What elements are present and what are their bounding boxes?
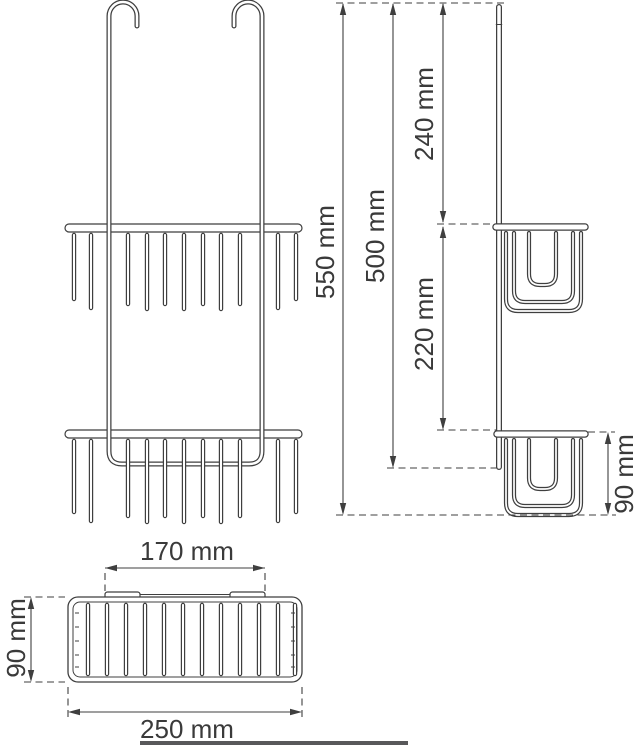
dim-label-170: 170 mm xyxy=(140,536,234,566)
top-view xyxy=(68,592,302,682)
upper-basket-rim xyxy=(65,224,302,232)
arrowhead xyxy=(340,503,346,515)
technical-drawing: 550 mm 500 mm 240 mm 220 mm 90 mm 170 mm… xyxy=(0,0,640,745)
arrowhead xyxy=(253,565,265,571)
upper-basket-profile-middle xyxy=(514,233,573,302)
bottom-edge-bar xyxy=(140,741,408,745)
dimensions-side: 550 mm 500 mm 240 mm 220 mm 90 mm xyxy=(310,3,639,515)
dim-label-240: 240 mm xyxy=(409,67,439,161)
upper-basket-profile-middle-core xyxy=(514,233,573,302)
dim-label-90-top: 90 mm xyxy=(1,598,31,677)
arrowhead xyxy=(440,418,446,430)
lower-basket-profile-inner xyxy=(529,440,556,489)
arrowhead xyxy=(105,565,117,571)
lower-basket-profile-middle-core xyxy=(514,440,573,506)
arrowhead xyxy=(68,709,80,715)
dim-label-500: 500 mm xyxy=(360,189,390,283)
hanger-frame-hooks xyxy=(109,2,262,464)
lower-basket-profile-inner-core xyxy=(529,440,556,489)
lower-basket-profile-middle xyxy=(514,440,573,506)
front-view xyxy=(65,2,302,522)
upper-basket-profile-inner-core xyxy=(529,233,556,285)
dim-label-220: 220 mm xyxy=(409,277,439,371)
arrowhead xyxy=(440,226,446,238)
arrowhead xyxy=(340,3,346,15)
lower-basket-rim xyxy=(65,430,302,438)
arrowhead xyxy=(440,3,446,15)
dim-label-550: 550 mm xyxy=(310,205,340,299)
dim-label-90-side: 90 mm xyxy=(609,434,639,513)
upper-basket-profile-inner xyxy=(529,233,556,285)
hanger-frame-hooks-core xyxy=(109,2,262,464)
arrowhead xyxy=(290,709,302,715)
side-view xyxy=(496,7,585,515)
arrowhead xyxy=(390,3,396,15)
arrowhead xyxy=(390,456,396,468)
arrowhead xyxy=(440,211,446,223)
dim-label-250: 250 mm xyxy=(140,714,234,744)
